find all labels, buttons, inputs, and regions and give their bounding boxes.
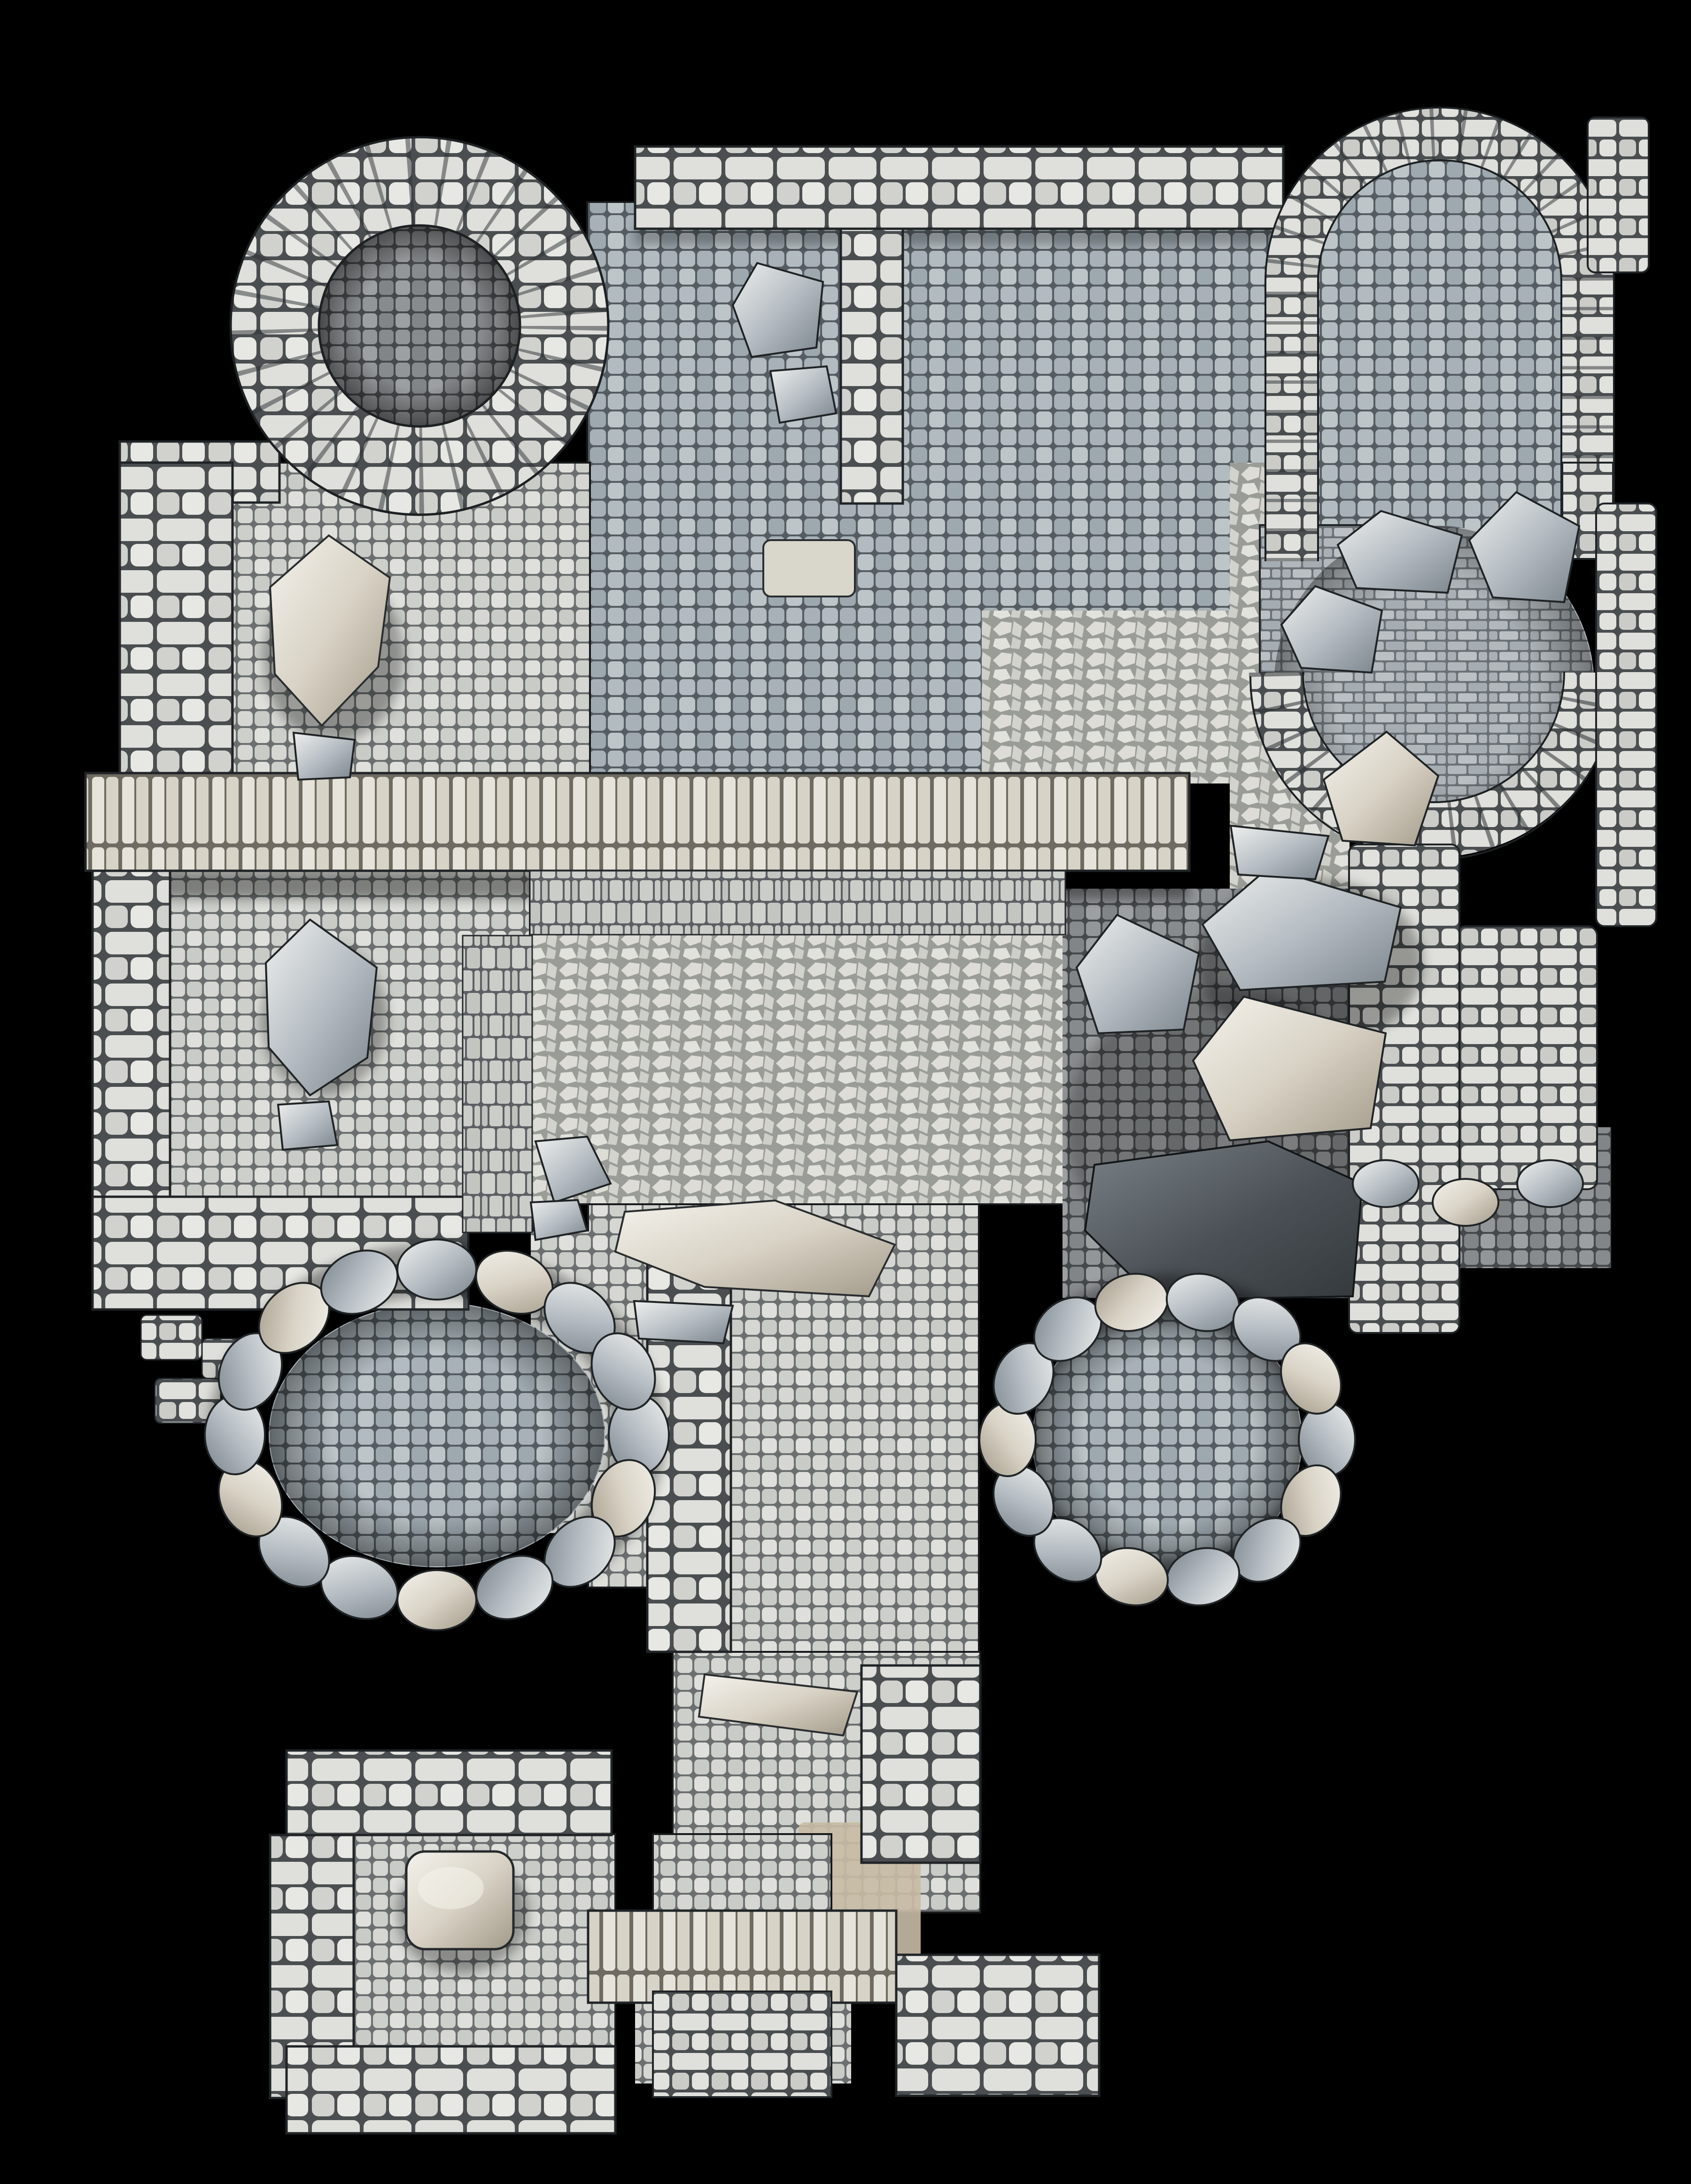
apse-east-buttress — [1588, 117, 1649, 272]
ring-boulder — [1299, 1403, 1355, 1476]
east-scarp-wall — [1456, 926, 1597, 1189]
small-room-south-wall — [287, 2046, 615, 2133]
round-well-tower — [231, 137, 608, 515]
long-slab-wall — [85, 773, 1189, 871]
ring-boulder — [979, 1403, 1036, 1476]
central-hall-north-brick-wall — [530, 871, 1065, 935]
boulder — [1433, 1179, 1498, 1226]
small-room-north-wall — [287, 1750, 612, 1835]
ring-boulder — [397, 1570, 476, 1630]
boulder — [634, 1301, 733, 1343]
small-room-east-blocks — [653, 1991, 831, 2097]
boulder — [278, 1101, 337, 1150]
boulder — [1353, 1160, 1419, 1207]
dungeon-map — [0, 0, 1691, 2184]
great-hall-divider-wall — [841, 229, 903, 503]
southwest-room-west-wall — [93, 871, 170, 1237]
great-hall-flagstone-patch — [982, 611, 1235, 783]
southeast-wall-chunk — [896, 1955, 1099, 2096]
chamber-shade — [270, 1303, 604, 1566]
floor-slab-stone — [763, 540, 855, 596]
boulder — [770, 366, 836, 423]
great-hall-north-wall — [635, 147, 1283, 229]
west-room-west-wall — [120, 463, 233, 786]
stem-east-wall — [861, 1665, 980, 1863]
boulder — [294, 733, 355, 780]
stem-end-slab-wall — [588, 1911, 896, 2003]
boulder — [1517, 1160, 1583, 1207]
east-rough-wall — [1596, 503, 1656, 926]
central-hall-west-brick-wall — [463, 936, 532, 1232]
stone-block-highlight — [418, 1867, 484, 1909]
loose-block — [141, 1315, 202, 1360]
ring-boulder — [397, 1239, 476, 1300]
dungeon-map-stage — [0, 0, 1691, 2184]
boulder — [1231, 826, 1328, 879]
